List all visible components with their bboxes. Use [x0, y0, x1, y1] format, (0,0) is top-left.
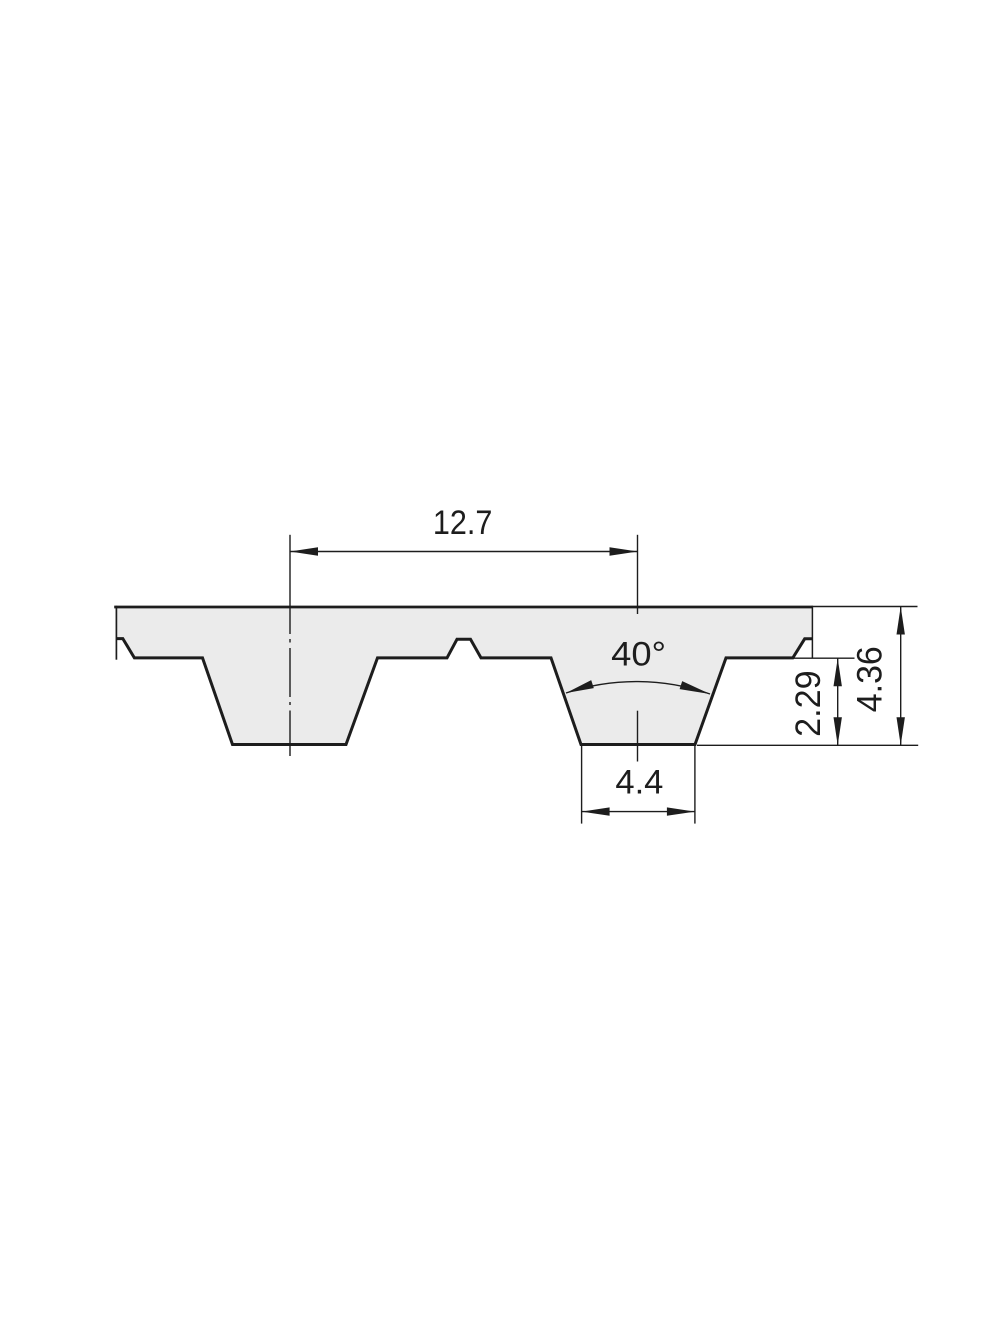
svg-text:4.36: 4.36: [851, 646, 890, 712]
svg-text:2.29: 2.29: [789, 670, 828, 737]
svg-text:4.4: 4.4: [615, 764, 663, 802]
svg-text:40°: 40°: [611, 635, 666, 673]
svg-text:12.7: 12.7: [433, 504, 493, 542]
